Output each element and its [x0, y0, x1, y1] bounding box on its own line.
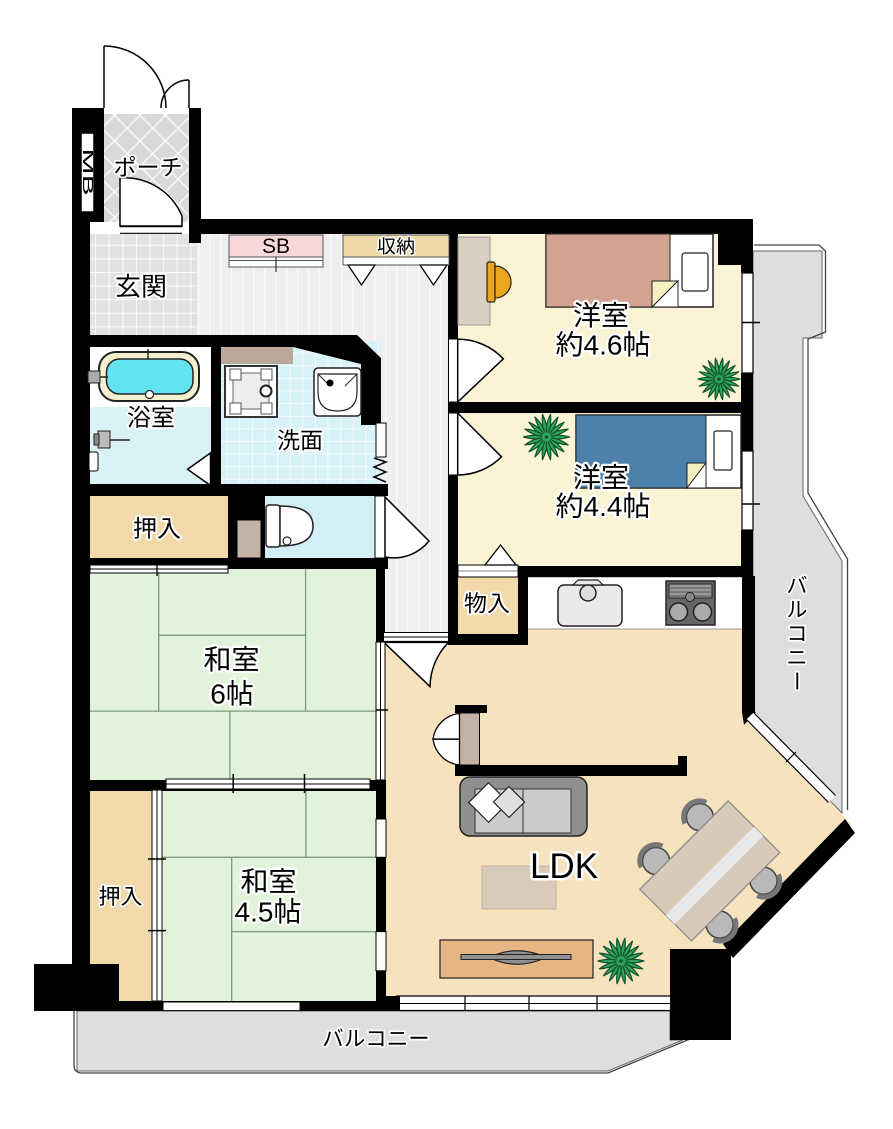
svg-text:4.6: 4.6: [584, 329, 623, 360]
svg-text:LDK: LDK: [530, 847, 598, 886]
svg-text:4.4: 4.4: [584, 491, 623, 522]
svg-text:MB: MB: [79, 148, 95, 195]
svg-text:4.5: 4.5: [235, 896, 274, 927]
svg-text:6: 6: [210, 678, 226, 709]
svg-text:SB: SB: [262, 235, 290, 258]
